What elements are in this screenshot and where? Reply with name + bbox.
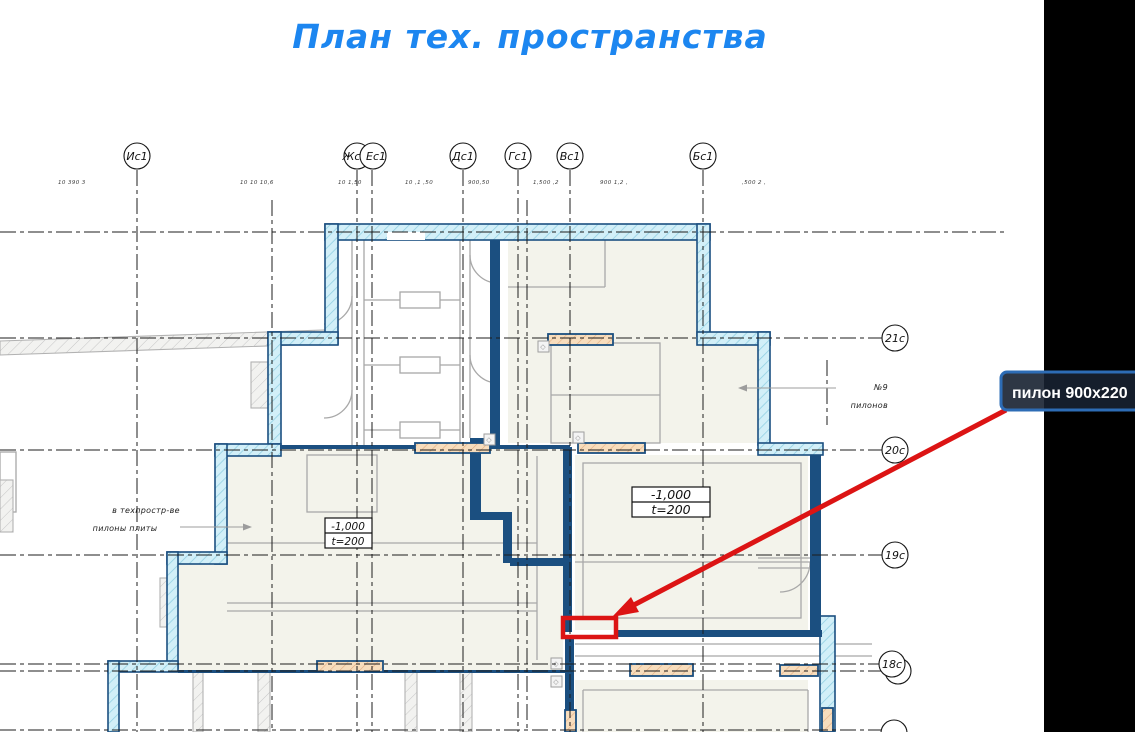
dim-text: 10 1,50 [338,180,362,186]
svg-text:Ес1: Ес1 [366,150,386,163]
svg-text:Бс1: Бс1 [693,150,714,163]
axis-bubble-is1: Ис1 [124,143,150,169]
axis-bubble-19s: 19с [882,542,908,568]
svg-text:Дс1: Дс1 [451,150,474,163]
axis-bubble-vs1: Вс1 [557,143,583,169]
page-title: План тех. пространства [292,17,767,56]
svg-text:Ис1: Ис1 [126,150,147,163]
svg-text:21с: 21с [885,332,905,345]
axis-bubble-es1: Ес1 [360,143,386,169]
axis-bubble-18s: 18с [879,651,911,684]
svg-text:19с: 19с [885,549,905,562]
top-axis-bubbles: Ис1 Жс1 Ес1 Дс1 Гс1 Вс1 Бс1 [124,143,716,169]
axis-bubble-ds1: Дс1 [450,143,476,169]
screenshot-root: План тех. пространства [0,0,1135,732]
svg-text:18с: 18с [882,658,902,671]
axis-bubble-bs1: Бс1 [690,143,716,169]
dim-text: 10 10 10,6 [240,180,274,186]
level-box-1: -1,000 t=200 [632,487,710,517]
dim-text: 10 390 3 [58,180,86,186]
svg-text:-1,000: -1,000 [331,521,365,533]
svg-text:пилонов: пилонов [851,401,888,410]
level-box-2: -1,000 t=200 [325,518,372,548]
pylon-tooltip-label: пилон 900x220 [1012,385,1128,402]
pylon-tooltip[interactable]: пилон 900x220 [1001,372,1135,410]
svg-text:в техпростр-ве: в техпростр-ве [112,506,180,515]
dim-text: 10 ,1 ,50 [405,180,433,186]
svg-text:◇: ◇ [486,436,492,444]
dim-text: ,500 2 , [742,180,766,186]
svg-text:пилоны плиты: пилоны плиты [93,524,158,533]
dimension-row: 10 390 3 10 10 10,6 10 1,50 10 ,1 ,50 90… [58,180,766,186]
dim-text: 900 1,2 , [600,180,628,186]
svg-text:Вс1: Вс1 [560,150,581,163]
axis-bubble-gs1: Гс1 [505,143,531,169]
axis-bubble-21s: 21с [882,325,908,351]
svg-text:◇: ◇ [575,434,581,442]
svg-text:t=200: t=200 [332,536,365,548]
floor-plan: План тех. пространства [0,0,1135,732]
svg-text:◇: ◇ [553,678,559,686]
dim-text: 900,50 [468,180,490,186]
svg-text:Гс1: Гс1 [508,150,527,163]
axis-bubble-partial [881,720,907,732]
svg-text:№9: №9 [873,383,888,392]
dim-text: 1,500 ,2 [533,180,559,186]
svg-text:◇: ◇ [540,343,546,351]
axis-bubble-20s: 20с [882,437,908,463]
side-panel [1044,0,1135,732]
svg-text:20с: 20с [885,444,905,457]
svg-text:t=200: t=200 [651,502,690,517]
svg-text:-1,000: -1,000 [651,487,691,502]
